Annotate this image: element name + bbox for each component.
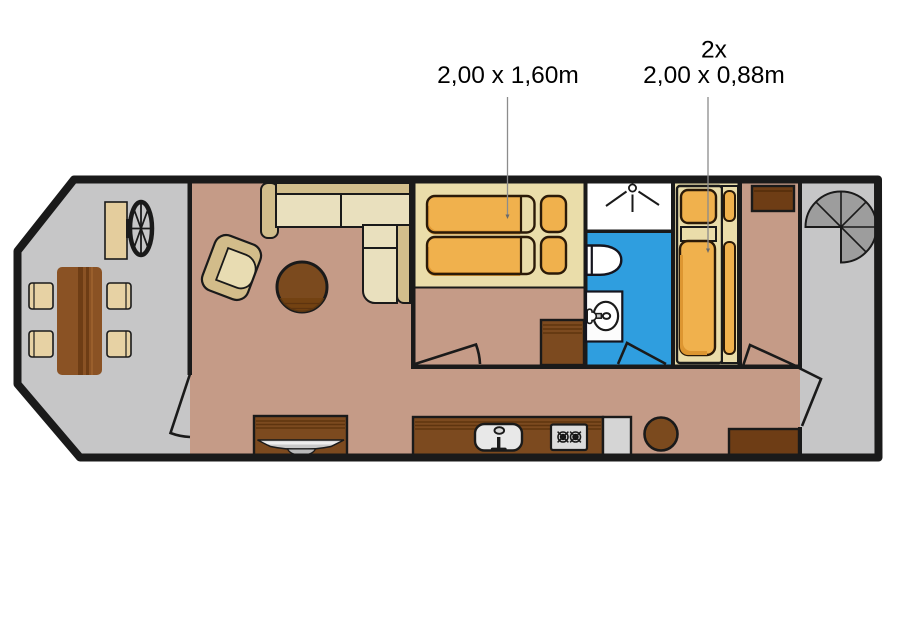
svg-text:2x: 2x [701, 37, 727, 64]
svg-text:2,00 x 0,88m: 2,00 x 0,88m [643, 62, 785, 89]
svg-text:2,00 x 1,60m: 2,00 x 1,60m [437, 62, 579, 89]
